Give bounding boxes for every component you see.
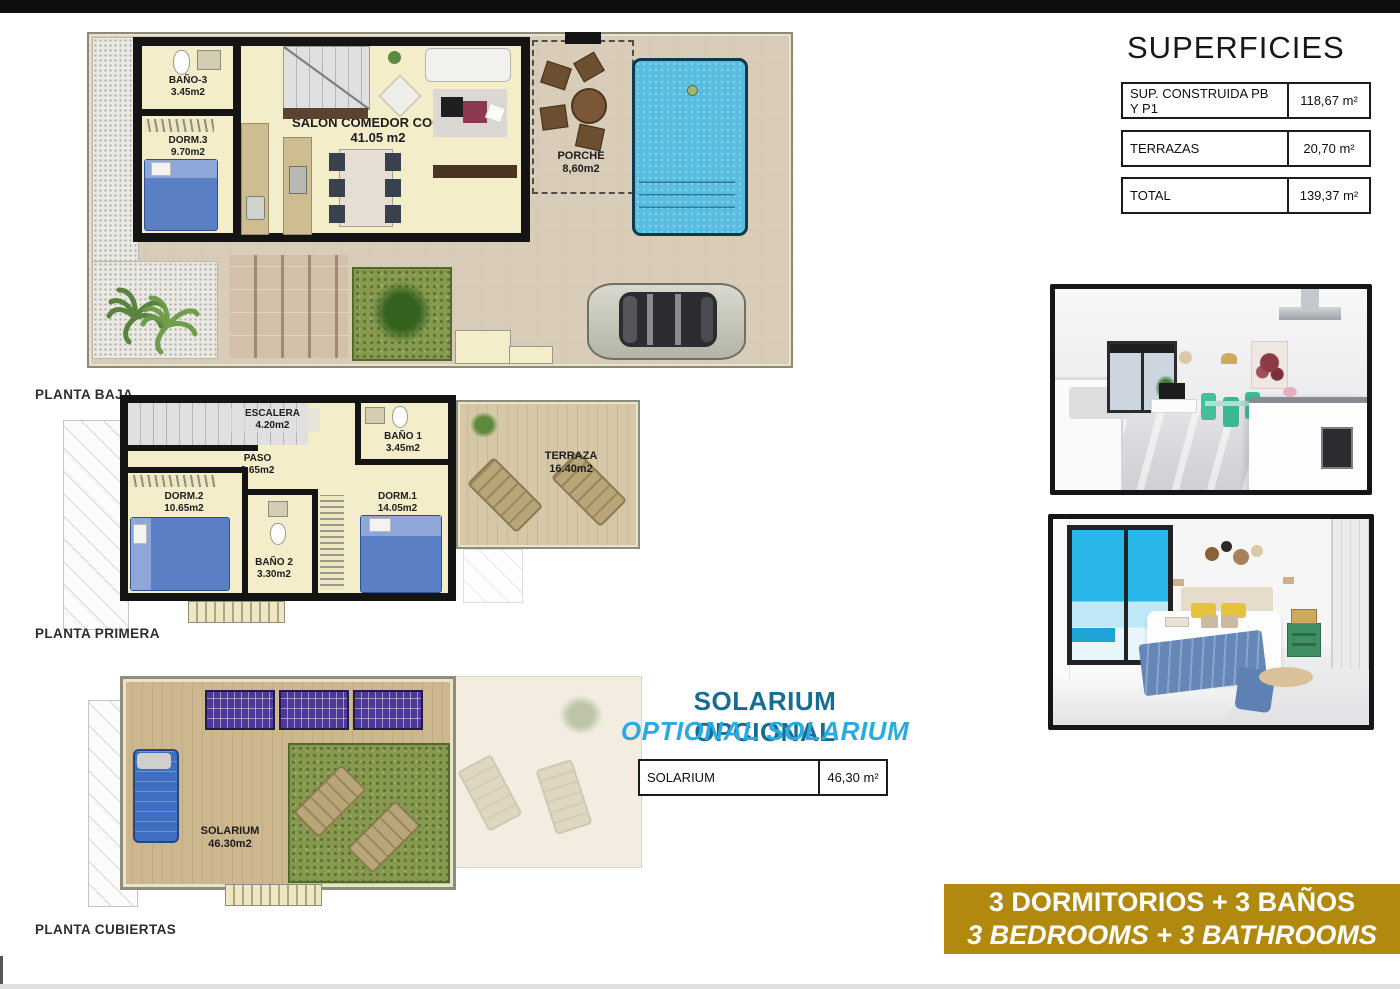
drawer-line: [1292, 643, 1316, 646]
row-label: TERRAZAS: [1123, 132, 1287, 165]
pendant-lamp: [1221, 353, 1237, 364]
tv-sideboard: [433, 165, 517, 178]
row-label: SOLARIUM: [640, 761, 818, 794]
terraza-deck: TERRAZA16.40m2: [456, 400, 640, 549]
tree-ghost-icon: [559, 695, 603, 735]
top-border-bar: [0, 0, 1400, 13]
pillow: [369, 518, 391, 532]
interior-wall: [233, 46, 241, 233]
lounger-pillow: [137, 753, 171, 769]
row-value: 20,70 m²: [1287, 132, 1369, 165]
car-roof-bar: [675, 294, 681, 345]
brochure-page: BAÑO-33.45m2 DORM.39.70m2 SALON COMEDOR …: [0, 0, 1400, 989]
wall-sconce: [1173, 579, 1184, 586]
room-label-paso: PASO2.65m2: [215, 453, 300, 477]
stove-icon: [289, 166, 307, 194]
interior-wall: [312, 489, 318, 593]
banner-line-en: 3 BEDROOMS + 3 BATHROOMS: [944, 919, 1400, 952]
plan-label-planta-primera: PLANTA PRIMERA: [35, 626, 160, 641]
car-roof-bar: [647, 294, 653, 345]
room-label-solarium: SOLARIUM46.30m2: [175, 825, 285, 851]
wall-plate-decor: [1233, 549, 1249, 565]
pool-glimpse: [1072, 628, 1115, 642]
floorplan-planta-cubiertas: SOLARIUM46.30m2: [85, 672, 645, 922]
toilet-icon: [392, 406, 408, 428]
bed-icon: [130, 517, 230, 591]
room-label-dorm1: DORM.114.05m2: [350, 491, 445, 515]
bed-icon: [144, 159, 218, 231]
sink-icon: [365, 407, 385, 424]
toilet-icon: [173, 50, 190, 75]
sun-lounger-ghost-icon: [457, 754, 522, 832]
photo-bedroom: [1048, 514, 1374, 730]
solarium-row: SOLARIUM 46,30 m²: [638, 759, 888, 796]
kitchen-sink-icon: [246, 196, 265, 220]
dining-chair: [329, 179, 345, 197]
row-value: 118,67 m²: [1287, 84, 1369, 117]
wall-plate-decor: [1251, 545, 1263, 557]
bottom-edge: [0, 984, 1400, 989]
balcony-stub: [188, 601, 285, 623]
dining-chair: [329, 153, 345, 171]
round-rug: [1259, 667, 1313, 687]
superficies-row-terrazas: TERRAZAS 20,70 m²: [1121, 130, 1371, 167]
driveway: [230, 255, 348, 358]
counter-flowers: [1283, 387, 1297, 397]
solar-panel-icon: [205, 690, 275, 730]
row-value: 139,37 m²: [1287, 179, 1369, 212]
room-label-bano2: BAÑO 23.30m2: [236, 557, 312, 581]
roof-lawn: [288, 743, 450, 883]
plant-icon: [470, 412, 498, 438]
stair-landing: [283, 108, 368, 119]
sink-icon: [197, 50, 221, 70]
plant-icon: [388, 51, 401, 64]
coffee-table-dark: [441, 97, 463, 117]
plan-label-planta-cubiertas: PLANTA CUBIERTAS: [35, 922, 176, 937]
entry-step: [455, 330, 511, 364]
interior-wall: [248, 489, 318, 495]
room-label-dorm2: DORM.210.65m2: [132, 491, 236, 515]
coffee-table-white: [485, 103, 506, 124]
wardrobe-hatch: [320, 495, 344, 590]
sun-lounger-icon: [347, 800, 421, 874]
sun-lounger-icon: [293, 764, 367, 838]
sink-icon: [268, 501, 288, 517]
solarium-title-en: OPTIONAL SOLARIUM: [620, 716, 910, 747]
row-label: TOTAL: [1123, 179, 1287, 212]
solar-panel-icon: [279, 690, 349, 730]
row-value: 46,30 m²: [818, 761, 886, 794]
pillow-print: [1221, 615, 1238, 628]
wardrobe: [1331, 519, 1371, 669]
house-first-floor: ESCALERA4.20m2 PASO2.65m2 BAÑO 13.45m2 D…: [120, 395, 456, 601]
lawn-patch: [352, 267, 452, 361]
room-label-bano3: BAÑO-33.45m2: [142, 75, 234, 99]
interior-wall: [142, 109, 241, 116]
toilet-icon: [270, 523, 286, 545]
sun-lounger-ghost-icon: [535, 759, 592, 835]
room-label-bano1: BAÑO 13.45m2: [361, 431, 445, 455]
superficies-row-total: TOTAL 139,37 m²: [1121, 177, 1371, 214]
closet-hatch: [130, 475, 216, 487]
kitchen-island: [283, 137, 312, 235]
banner-line-es: 3 DORMITORIOS + 3 BAÑOS: [944, 886, 1400, 919]
porch-chair-icon: [540, 104, 569, 130]
solar-panel-icon: [353, 690, 423, 730]
row-label: SUP. CONSTRUIDA PB Y P1: [1123, 84, 1287, 117]
tv: [1159, 383, 1185, 399]
solarium-deck: SOLARIUM46.30m2: [120, 676, 456, 890]
wall-mirror: [1179, 351, 1192, 364]
car-rear-window: [701, 297, 713, 342]
superficies-row-construida: SUP. CONSTRUIDA PB Y P1 118,67 m²: [1121, 82, 1371, 119]
dining-chair: [329, 205, 345, 223]
floorplan-planta-baja: BAÑO-33.45m2 DORM.39.70m2 SALON COMEDOR …: [85, 28, 793, 370]
pillow: [133, 524, 147, 544]
entry-step: [509, 346, 553, 364]
drawer-line: [1292, 633, 1316, 636]
room-label-dorm3: DORM.39.70m2: [142, 135, 234, 159]
gravel-garden-left: [92, 37, 139, 263]
coffee-table-red: [463, 101, 487, 123]
room-label-terraza: TERRAZA16.40m2: [516, 450, 626, 476]
bed-icon: [360, 515, 442, 593]
picture-frames: [1291, 609, 1317, 624]
nightstand-green: [1287, 623, 1321, 657]
wall-sconce: [1283, 577, 1294, 584]
wall-plate-decor: [1205, 547, 1219, 561]
swimming-pool: [632, 58, 748, 236]
roller-blind: [1110, 344, 1174, 353]
pillow-print: [1201, 615, 1218, 628]
wall-plate-decor: [1221, 541, 1232, 552]
dining-chair: [385, 205, 401, 223]
terrace-below-ghost: [448, 676, 642, 868]
kitchen-counter: [241, 123, 269, 235]
lower-terrace-ghost: [463, 549, 523, 603]
sofa-icon: [425, 48, 511, 82]
bush-icon: [372, 281, 432, 343]
rug: [433, 89, 507, 137]
car-icon: [587, 283, 746, 360]
car-windshield: [623, 296, 637, 343]
pool-skimmer: [687, 85, 698, 96]
blue-lounger-icon: [133, 749, 179, 843]
window-mullion: [1141, 344, 1144, 410]
interior-wall: [128, 467, 248, 473]
photo-living-kitchen: [1050, 284, 1372, 495]
boundary-wall-stub: [565, 32, 601, 44]
pool-lane-lines: [639, 175, 735, 219]
breakfast-tray: [1165, 617, 1189, 627]
superficies-title: SUPERFICIES: [1127, 30, 1345, 66]
room-label-escalera: ESCALERA4.20m2: [225, 408, 320, 432]
stair-diagonal: [284, 47, 369, 109]
dining-chair-green: [1201, 393, 1216, 420]
room-label-porche: PORCHE8,60m2: [533, 150, 629, 176]
pillow: [151, 162, 171, 176]
hood-chimney: [1301, 289, 1319, 309]
staircase: [283, 46, 370, 110]
dining-chair: [385, 153, 401, 171]
tv-unit: [1151, 399, 1197, 413]
left-edge-mark: [0, 956, 3, 984]
floorplan-planta-primera: ESCALERA4.20m2 PASO2.65m2 BAÑO 13.45m2 D…: [63, 393, 643, 633]
porch-table-icon: [571, 88, 607, 124]
bedrooms-bathrooms-banner: 3 DORMITORIOS + 3 BAÑOS 3 BEDROOMS + 3 B…: [944, 884, 1400, 954]
palm-trees-icon: [105, 278, 201, 359]
artwork: [1251, 341, 1288, 389]
house-ground-floor: BAÑO-33.45m2 DORM.39.70m2 SALON COMEDOR …: [133, 37, 530, 242]
balcony-stub: [225, 884, 322, 906]
interior-wall: [355, 459, 448, 465]
dining-chair: [385, 179, 401, 197]
window-mullion: [1124, 530, 1128, 660]
interior-wall: [128, 445, 258, 451]
closet-hatch: [144, 119, 214, 132]
oven: [1321, 427, 1353, 469]
